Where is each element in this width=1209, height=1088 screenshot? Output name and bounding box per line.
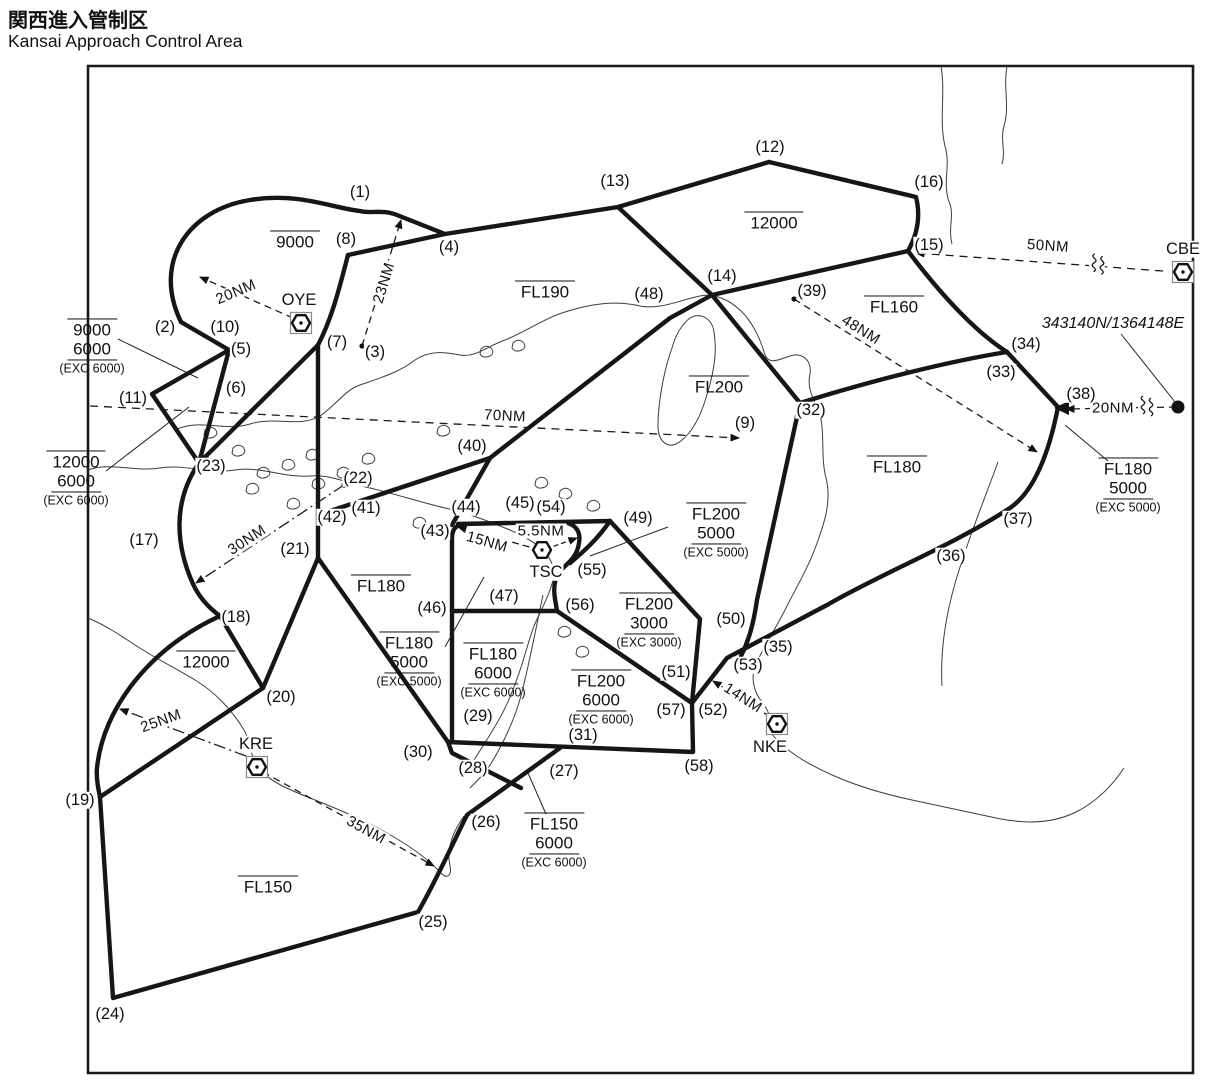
- altitude-value: 3000: [624, 614, 674, 635]
- boundary-point-label: (52): [697, 702, 728, 719]
- distance-line: [90, 406, 739, 438]
- altitude-limit-line: FL150: [238, 875, 298, 896]
- altitude-value: FL180: [379, 631, 439, 652]
- altitude-limit-line: (EXC 6000): [59, 361, 124, 376]
- island: [512, 340, 525, 351]
- island: [535, 477, 548, 488]
- altitude-limit-label: FL200: [689, 375, 749, 396]
- distance-label: 70NM: [482, 407, 529, 424]
- altitude-limit-label: FL1805000(EXC 5000): [376, 631, 441, 688]
- altitude-limit-line: (EXC 5000): [1095, 500, 1160, 515]
- boundary-point-label: (16): [913, 174, 944, 191]
- altitude-value: 6000: [468, 664, 518, 685]
- boundary-point-label: (56): [564, 597, 595, 614]
- altitude-value: FL200: [686, 502, 746, 523]
- altitude-value: 6000: [576, 691, 626, 712]
- boundary-point-label: (3): [364, 344, 386, 361]
- altitude-limit-label: FL1506000(EXC 6000): [521, 812, 586, 869]
- boundary-point-label: (40): [456, 438, 487, 455]
- altitude-value: 12000: [176, 650, 235, 671]
- boundary-point-label: (28): [457, 760, 488, 777]
- sector-boundary-line-13-32: [618, 207, 800, 403]
- sector-boundary-line-32-junction: [741, 403, 800, 656]
- label-leader-line: [106, 407, 189, 471]
- boundary-point-label: (22): [342, 470, 373, 487]
- island: [362, 453, 375, 464]
- label-leader-line: [1121, 334, 1175, 402]
- boundary-point-label: (19): [64, 792, 95, 809]
- coastline: [941, 66, 952, 244]
- boundary-point-label: (47): [488, 588, 519, 605]
- altitude-limit-line: (EXC 6000): [521, 855, 586, 870]
- island: [257, 467, 270, 478]
- boundary-point-label: (53): [732, 657, 763, 674]
- altitude-value: FL180: [463, 642, 523, 663]
- boundary-point-label: (50): [715, 611, 746, 628]
- label-leader-line: [528, 773, 546, 814]
- boundary-point-label: (20): [265, 689, 296, 706]
- altitude-limit-line: FL180: [460, 642, 525, 663]
- altitude-value: 6000: [51, 472, 101, 493]
- altitude-limit-label: FL160: [864, 295, 924, 316]
- altitude-value: 9000: [67, 318, 117, 339]
- altitude-limit-line: 9000: [59, 318, 124, 339]
- altitude-limit-line: FL190: [515, 280, 575, 301]
- altitude-value: FL180: [1098, 457, 1158, 478]
- altitude-limit-label: 90006000(EXC 6000): [59, 318, 124, 375]
- altitude-limit-line: FL180: [376, 631, 441, 652]
- altitude-limit-line: FL200: [568, 669, 633, 690]
- boundary-point-label: (1): [349, 184, 371, 201]
- altitude-value: FL180: [867, 455, 927, 476]
- boundary-point-label: (30): [402, 744, 433, 761]
- sector-boundary-west-arc-23-18: [179, 463, 220, 616]
- boundary-point-label: (35): [762, 639, 793, 656]
- altitude-limit-label: FL180: [351, 574, 411, 595]
- altitude-limit-line: (EXC 6000): [460, 685, 525, 700]
- altitude-limit-label: 12000: [176, 650, 235, 671]
- navaid-label-oye: OYE: [281, 292, 318, 309]
- altitude-value: FL200: [571, 669, 631, 690]
- altitude-value: FL200: [619, 592, 679, 613]
- boundary-point-label: (24): [94, 1006, 125, 1023]
- label-leader-line: [118, 339, 198, 378]
- sector-boundary-line-32-34: [800, 352, 1007, 403]
- altitude-limit-line: (EXC 6000): [43, 493, 108, 508]
- altitude-limit-line: 5000: [1095, 479, 1160, 500]
- boundary-point-label: (34): [1010, 336, 1041, 353]
- navaid-symbol-oye: [291, 313, 312, 334]
- altitude-limit-line: 12000: [176, 650, 235, 671]
- sector-boundary-line-12-15: [769, 162, 918, 251]
- boundary-point-label: (55): [576, 562, 607, 579]
- altitude-value: FL160: [864, 295, 924, 316]
- altitude-limit-line: 5000: [683, 524, 748, 545]
- altitude-value: FL150: [238, 875, 298, 896]
- boundary-point-label: (26): [470, 814, 501, 831]
- boundary-point-label: (7): [326, 334, 348, 351]
- boundary-point-label: (57): [655, 702, 686, 719]
- boundary-point-label: (29): [462, 708, 493, 725]
- boundary-point-label: (6): [225, 380, 247, 397]
- altitude-limit-line: FL180: [351, 574, 411, 595]
- island: [558, 626, 571, 637]
- altitude-limit-line: (EXC 6000): [568, 712, 633, 727]
- boundary-point-label: (39): [796, 283, 827, 300]
- navaid-label-tsc: TSC: [529, 564, 564, 581]
- altitude-value: 5000: [691, 524, 741, 545]
- altitude-limit-line: (EXC 3000): [616, 635, 681, 650]
- boundary-point-label: (54): [535, 499, 566, 516]
- altitude-limit-line: FL200: [616, 592, 681, 613]
- boundary-point-label: (46): [416, 600, 447, 617]
- boundary-point-label: (4): [438, 239, 460, 256]
- altitude-value: 9000: [270, 230, 320, 251]
- boundary-point-label: (51): [660, 664, 691, 681]
- altitude-limit-line: (EXC 5000): [683, 545, 748, 560]
- altitude-limit-label: FL180: [867, 455, 927, 476]
- altitude-value: 6000: [67, 340, 117, 361]
- boundary-point-label: (21): [279, 541, 310, 558]
- line-break-squiggle: [1088, 251, 1106, 278]
- island: [587, 500, 600, 511]
- navaid-symbol-tsc: [533, 542, 551, 558]
- sector-boundary-north-line-8-12: [348, 162, 769, 255]
- altitude-limit-line: FL150: [521, 812, 586, 833]
- navaid-symbol-nke: [767, 714, 788, 735]
- distance-label: 5.5NM: [516, 524, 567, 539]
- altitude-value: FL150: [524, 812, 584, 833]
- coordinate-note: 343140N/1364148E: [1042, 315, 1184, 333]
- altitude-value: FL190: [515, 280, 575, 301]
- vor-center-dot: [1181, 270, 1184, 273]
- boundary-point-label: (58): [683, 758, 714, 775]
- altitude-limit-line: FL200: [689, 375, 749, 396]
- altitude-value: FL180: [351, 574, 411, 595]
- island: [246, 483, 259, 494]
- coastline: [942, 462, 998, 686]
- altitude-value: 6000: [529, 834, 579, 855]
- boundary-point-label: (8): [335, 231, 357, 248]
- boundary-point-label: (37): [1002, 511, 1033, 528]
- navaid-label-nke: NKE: [752, 739, 788, 756]
- boundary-point-label: (33): [985, 364, 1016, 381]
- altitude-limit-line: 12000: [43, 450, 108, 471]
- sector-boundary-southwest-19-24-27: [100, 748, 560, 998]
- navaid-symbol-kre: [247, 757, 268, 778]
- boundary-point-label: (12): [754, 139, 785, 156]
- distance-label: 50NM: [1025, 237, 1072, 255]
- vor-center-dot: [540, 548, 543, 551]
- boundary-point-label: (23): [195, 458, 226, 475]
- vor-center-dot: [299, 321, 302, 324]
- altitude-value: 5000: [384, 653, 434, 674]
- distance-label: 20NM: [1090, 401, 1136, 416]
- island: [576, 646, 589, 657]
- boundary-point-label: (11): [118, 390, 148, 407]
- altitude-limit-line: 12000: [744, 211, 803, 232]
- navaid-label-cbe: CBE: [1165, 241, 1201, 258]
- coastline: [1002, 66, 1007, 164]
- boundary-point-label: (9): [734, 415, 756, 432]
- altitude-limit-line: 5000: [376, 653, 441, 674]
- boundary-point-label: (27): [548, 763, 579, 780]
- boundary-point-label: (13): [599, 173, 630, 190]
- boundary-point-label: (32): [795, 402, 826, 419]
- altitude-limit-label: 120006000(EXC 6000): [43, 450, 108, 507]
- altitude-value: FL200: [689, 375, 749, 396]
- label-leader-line: [1065, 425, 1108, 461]
- boundary-point-label: (45): [504, 495, 535, 512]
- map-border: [88, 66, 1193, 1073]
- sector-boundary-west-arc-18-19: [97, 616, 220, 797]
- altitude-limit-label: FL2006000(EXC 6000): [568, 669, 633, 726]
- boundary-point-label: (49): [622, 510, 653, 527]
- altitude-limit-line: 3000: [616, 614, 681, 635]
- altitude-limit-label: FL150: [238, 875, 298, 896]
- boundary-point-label: (5): [230, 341, 252, 358]
- altitude-limit-line: 6000: [460, 664, 525, 685]
- altitude-limit-label: FL1806000(EXC 6000): [460, 642, 525, 699]
- distance-line: [916, 253, 1163, 271]
- airspace-map-svg: [0, 0, 1209, 1088]
- island: [282, 459, 295, 470]
- altitude-limit-line: FL180: [867, 455, 927, 476]
- island: [287, 498, 300, 509]
- navaid-symbol-cbe: [1173, 262, 1194, 283]
- island: [232, 445, 245, 456]
- coordinate-point-dot: [1172, 401, 1185, 414]
- vor-center-dot: [255, 765, 258, 768]
- island: [480, 346, 493, 357]
- altitude-limit-line: 6000: [59, 340, 124, 361]
- altitude-limit-label: FL2003000(EXC 3000): [616, 592, 681, 649]
- boundary-point-label: (42): [316, 509, 347, 526]
- boundary-point-label: (36): [935, 548, 966, 565]
- altitude-limit-line: 9000: [270, 230, 320, 251]
- boundary-point-label: (14): [706, 268, 737, 285]
- boundary-point-label: (43): [419, 523, 450, 540]
- boundary-point-label: (48): [633, 286, 664, 303]
- altitude-limit-line: 6000: [521, 834, 586, 855]
- boundary-point-label: (44): [450, 499, 481, 516]
- boundary-point-label: (25): [417, 914, 448, 931]
- altitude-limit-label: FL2005000(EXC 5000): [683, 502, 748, 559]
- boundary-point-label: (2): [154, 319, 176, 336]
- altitude-limit-line: FL160: [864, 295, 924, 316]
- boundary-point-label: (41): [350, 500, 381, 517]
- altitude-limit-line: FL180: [1095, 457, 1160, 478]
- line-break-squiggle: [1138, 394, 1154, 420]
- altitude-limit-line: (EXC 5000): [376, 674, 441, 689]
- boundary-point-label: (17): [128, 532, 159, 549]
- altitude-value: 5000: [1103, 479, 1153, 500]
- sector-boundary-chords-18-20-19: [100, 616, 263, 797]
- kansai-approach-chart: 関西進入管制区 Kansai Approach Control Area 20N…: [0, 0, 1209, 1088]
- boundary-point-label: (10): [209, 319, 240, 336]
- boundary-point-label: (38): [1065, 386, 1096, 403]
- altitude-limit-line: FL200: [683, 502, 748, 523]
- altitude-limit-label: 9000: [270, 230, 320, 251]
- altitude-limit-line: 6000: [568, 691, 633, 712]
- altitude-limit-line: 6000: [43, 472, 108, 493]
- boundary-point-label: (31): [567, 727, 598, 744]
- vor-center-dot: [775, 722, 778, 725]
- altitude-limit-label: 12000: [744, 211, 803, 232]
- altitude-value: 12000: [744, 211, 803, 232]
- altitude-limit-label: FL1805000(EXC 5000): [1095, 457, 1160, 514]
- navaid-label-kre: KRE: [238, 736, 274, 753]
- altitude-limit-label: FL190: [515, 280, 575, 301]
- boundary-point-label: (15): [913, 237, 944, 254]
- island: [437, 425, 450, 436]
- altitude-value: 12000: [46, 450, 105, 471]
- boundary-point-label: (18): [220, 609, 251, 626]
